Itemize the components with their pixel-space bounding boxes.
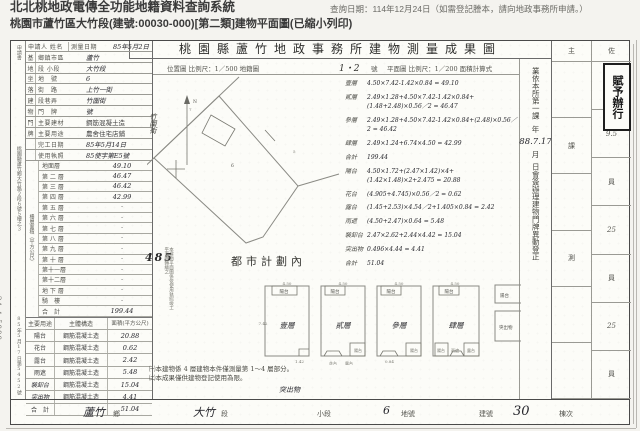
scanned-document: 桃園縣蘆竹地政事務所建物測量成果圖 位置圖 比例尺：1／500 地籍圖 1・2 … bbox=[10, 40, 630, 425]
sig-cell: 員 bbox=[592, 255, 631, 303]
row-value: 鋼筋混凝土造 bbox=[84, 117, 152, 127]
attach-area: 2.42 bbox=[108, 356, 152, 364]
area-calculation-block: 壹層4.50×7.42-1.42×0.84 = 49.10 貳層2.49×1.2… bbox=[345, 79, 519, 272]
location-map-scale: 位置圖 比例尺：1／500 地籍圖 bbox=[167, 63, 259, 73]
table-row: 陽台鋼筋混凝土造20.88 bbox=[26, 330, 152, 342]
row-label: 主要建材 bbox=[36, 118, 84, 127]
calc-line: 肆層2.49×1.24+6.74×4.50 = 42.99 bbox=[345, 139, 519, 148]
table-row: 門 主要建材 鋼筋混凝土造 bbox=[26, 117, 152, 128]
tracing-note: 本建物平面圖係依使用執照竣工平面圖轉繪之 bbox=[163, 247, 172, 311]
group-char: 門 bbox=[26, 117, 36, 127]
floor-area: · bbox=[92, 224, 152, 232]
header-structure: 主體構造 bbox=[54, 318, 108, 329]
township-label: 鄉 bbox=[113, 409, 120, 419]
table-row: 露台鋼筋混凝土造2.42 bbox=[26, 354, 152, 366]
table-row: 地 段 小段 大竹段 bbox=[26, 63, 152, 74]
table-row: 騎 樓· bbox=[39, 296, 152, 306]
header-use: 主要用途 bbox=[26, 319, 54, 328]
balcony-label: 陽台 bbox=[387, 288, 396, 295]
attach-structure: 鋼筋混凝土造 bbox=[54, 354, 108, 365]
floor-label: 第 二 層 bbox=[39, 172, 92, 181]
table-row: 使用執照 85使字第E5號 bbox=[26, 150, 152, 161]
attach-use: 雨遮 bbox=[26, 368, 54, 377]
canopy-label: 雨遮 bbox=[451, 347, 459, 353]
left-form-column: 申請書 桃園縣蘆竹鄉大竹路２段６號５樓之３ 85年5月17日第5452號 申請人… bbox=[11, 41, 153, 399]
floor-label: 地 下 層 bbox=[39, 286, 92, 295]
table-row: 第 八 層· bbox=[39, 234, 152, 244]
floor-label: 地面層 bbox=[39, 161, 92, 170]
floor-label: 第 四 層 bbox=[39, 192, 92, 201]
calc-expr: 2.47×2.62+2.44×4.42 = 15.04 bbox=[367, 231, 519, 240]
location-map: 竹圍街 N 7 5 6 bbox=[147, 73, 349, 279]
row-value: 6 bbox=[84, 75, 152, 83]
floor-area: · bbox=[92, 245, 152, 253]
balcony-label: 陽台 bbox=[445, 288, 454, 295]
row-value: 號 bbox=[84, 106, 152, 116]
floor-area: 46.42 bbox=[92, 182, 152, 190]
group-char: 牌 bbox=[26, 128, 36, 138]
attach-use: 花台 bbox=[26, 343, 54, 352]
dimension: 4.50 bbox=[339, 281, 348, 286]
calc-line: 壹層4.50×7.42-1.42×0.84 = 49.10 bbox=[345, 79, 519, 88]
calc-expr: 2.49×1.24+6.74×4.50 = 42.99 bbox=[367, 139, 519, 148]
floor-plan-3: 4.50 陽台 參層 陽台 0.84 bbox=[377, 281, 421, 364]
attach-structure: 鋼筋混凝土造 bbox=[54, 342, 108, 353]
page-edge-line bbox=[633, 44, 634, 424]
floor-name: 肆層 bbox=[449, 321, 465, 330]
floor-table-side-label: 樓層面積（平方公尺） bbox=[26, 161, 39, 317]
table-row: 第 六 層· bbox=[39, 213, 152, 223]
floor-plan-4: 4.50 陽台 肆層 陽台 露台 雨遮 bbox=[433, 281, 479, 356]
applicant-row: 申請人 姓名 測量日期 85年5月2日 bbox=[26, 41, 152, 52]
land-number-value: 6 bbox=[383, 404, 390, 417]
table-row: 坐 地 號 6 bbox=[26, 74, 152, 84]
document-title: 桃園縣蘆竹地政事務所建物測量成果圖 bbox=[129, 41, 551, 59]
group-char: 坐 bbox=[26, 74, 36, 83]
sig-cell: 25 bbox=[592, 206, 631, 254]
group-char bbox=[26, 139, 36, 149]
attach-use: 裝卸台 bbox=[26, 380, 54, 389]
row-value: 大竹段 bbox=[84, 63, 152, 73]
note-line: ㈠本建物係 4 層建物本件僅測量第 1～4 層部分。 bbox=[149, 365, 293, 374]
dimension: 0.84 bbox=[385, 359, 394, 364]
floor-label: 第 九 層 bbox=[39, 244, 92, 253]
parcel-number: 6 bbox=[231, 163, 234, 169]
calc-label: 露台 bbox=[345, 203, 367, 212]
query-date: 查詢日期：114年12月24日（如需登記謄本，請向地政事務所申請。） bbox=[330, 3, 588, 15]
urban-plan-label: 都市計劃內 bbox=[231, 253, 306, 269]
row-value: 竹圍街 bbox=[84, 95, 152, 105]
dimension: 1.42 bbox=[295, 359, 304, 364]
township-value: 蘆竹 bbox=[83, 404, 105, 420]
building-number-value: 30 bbox=[513, 404, 530, 419]
sig-header: 主 bbox=[552, 41, 591, 62]
table-row: 第 三 層46.42 bbox=[39, 182, 152, 192]
applicant-address: 桃園縣蘆竹鄉大竹路２段６號５樓之３ bbox=[15, 146, 21, 231]
sig-cell bbox=[552, 343, 591, 399]
attach-use: 陽台 bbox=[26, 331, 54, 340]
row-label: 段巷弄 bbox=[36, 96, 84, 105]
attach-structure: 鋼筋混凝土造 bbox=[54, 379, 108, 390]
calc-label: 花台 bbox=[345, 190, 367, 199]
dimension: 4.50 bbox=[283, 281, 292, 286]
sig-cell: 25 bbox=[592, 303, 631, 351]
group-char: 物 bbox=[26, 106, 36, 116]
calc-expr: 0.496×4.44 = 4.41 bbox=[367, 245, 519, 254]
table-row: 花台鋼筋混凝土造0.62 bbox=[26, 342, 152, 354]
floor-label: 第十一層 bbox=[39, 265, 92, 274]
balcony-label: 陽台 bbox=[280, 288, 289, 295]
attach-use: 露台 bbox=[26, 356, 54, 365]
boundary-spur bbox=[298, 174, 339, 186]
dimension: 4.50 bbox=[395, 281, 404, 286]
balcony-label: 陽台 bbox=[354, 347, 362, 353]
header-area: 面積(平方公尺) bbox=[108, 319, 152, 327]
balcony-label: 陽台 bbox=[437, 347, 445, 353]
attach-area: 5.48 bbox=[108, 368, 152, 376]
table-row: 第 四 層42.99 bbox=[39, 192, 152, 202]
calc-line: 花台(4.905+4.745)×0.56／2 = 0.62 bbox=[345, 190, 519, 199]
attach-area: 20.88 bbox=[108, 332, 152, 340]
floor-label: 第十二層 bbox=[39, 275, 92, 284]
calc-expr: (1.45+2.53)×4.54／2+1.405×0.84 = 2.42 bbox=[367, 203, 519, 212]
floor-name: 參層 bbox=[392, 321, 408, 330]
table-row: 合 計199.44 bbox=[39, 306, 152, 316]
neighbor-parcel-number: 7 bbox=[189, 107, 192, 112]
signature-strip: 主 課 測 佐 長 9.5 員 25 員 25 員 賦予辦行 bbox=[551, 41, 631, 399]
side-label-text: 樓層面積（平方公尺） bbox=[29, 214, 36, 264]
table-row: 基 鄉鎮市區 蘆竹 bbox=[26, 52, 152, 63]
floor-label: 第 八 層 bbox=[39, 234, 92, 243]
memo-month-label: 月 bbox=[532, 150, 540, 159]
north-label: N bbox=[193, 99, 197, 105]
attach-area: 15.04 bbox=[108, 381, 152, 389]
sig-cell bbox=[552, 174, 591, 230]
left-margin-strip: 申請書 桃園縣蘆竹鄉大竹路２段６號５樓之３ 85年5月17日第5452號 bbox=[11, 41, 26, 399]
calc-expr: 4.50×1.72+(2.47×1.42)×4+(1.42×1.48)×2+2.… bbox=[367, 167, 519, 186]
table-row: 雨遮鋼筋混凝土造5.48 bbox=[26, 367, 152, 379]
floor-label: 第 五 層 bbox=[39, 203, 92, 212]
row-value: 蘆竹 bbox=[84, 52, 152, 62]
calc-label: 參層 bbox=[345, 116, 367, 135]
floor-area: · bbox=[92, 266, 152, 274]
floor-total: 199.44 bbox=[92, 307, 152, 315]
sig-header: 佐 bbox=[592, 41, 631, 62]
table-row: 第 五 層· bbox=[39, 203, 152, 213]
row-value: 85使字第E5號 bbox=[84, 150, 152, 160]
row-value: 農舍住宅店鋪 bbox=[84, 128, 152, 138]
left-form-main: 申請人 姓名 測量日期 85年5月2日 基 鄉鎮市區 蘆竹 地 段 小段 大竹段… bbox=[26, 41, 152, 399]
floor-area: · bbox=[92, 286, 152, 294]
section-value: 大竹 bbox=[193, 404, 215, 420]
calc-line: 合計51.04 bbox=[345, 259, 519, 268]
table-row: 落 街 路 上竹一街 bbox=[26, 84, 152, 95]
bottom-location-bar: 蘆竹 鄉 大竹 段 小段 6 地號 建號 30 棟次 bbox=[11, 399, 629, 425]
dimension: 4.50 bbox=[451, 281, 460, 286]
table-row: 建 段巷弄 竹圍街 bbox=[26, 95, 152, 106]
system-title: 北北桃地政電傳全功能地籍資料查詢系統 bbox=[10, 0, 235, 15]
land-number-label: 地號 bbox=[401, 409, 415, 419]
north-arrow-icon bbox=[184, 95, 190, 104]
floor-area: · bbox=[92, 255, 152, 263]
calc-line: 露台(1.45+2.53)×4.54／2+1.405×0.84 = 2.42 bbox=[345, 203, 519, 212]
form-print-number: 24-4-5000 bbox=[0, 296, 2, 341]
building-footprint bbox=[202, 115, 235, 146]
note-line: ㈡本成果僅供建物登記使用為限。 bbox=[149, 374, 293, 383]
boundary-tick bbox=[265, 130, 275, 141]
floor-area-table: 樓層面積（平方公尺） 地面層49.10 第 二 層46.47 第 三 層46.4… bbox=[26, 161, 152, 318]
memo-text: 日會簽辦理建物門牌異動登正 bbox=[531, 163, 540, 261]
balcony-label: 陽台 bbox=[410, 347, 418, 353]
floor-plan-1: 4.50 陽台 7.42 壹層 1.42 bbox=[259, 281, 309, 364]
sig-cell: 課 bbox=[552, 118, 591, 174]
survey-date-label: 測量日期 bbox=[68, 42, 111, 51]
group-char: 落 bbox=[26, 84, 36, 94]
calc-expr: (4.50+2.47)×0.64 = 5.48 bbox=[367, 217, 519, 226]
table-row: 完工日期 85年5月14日 bbox=[26, 139, 152, 150]
calc-line: 雨遮(4.50+2.47)×0.64 = 5.48 bbox=[345, 217, 519, 226]
group-char: 建 bbox=[26, 95, 36, 105]
road-line bbox=[147, 77, 239, 176]
floor-label: 合 計 bbox=[39, 307, 92, 316]
number-assignment-stamp: 賦予辦行 bbox=[603, 63, 631, 131]
floor-area: 49.10 bbox=[92, 162, 152, 170]
block-label: 棟次 bbox=[559, 409, 573, 419]
table-row: 第 七 層· bbox=[39, 223, 152, 233]
projection-label: 突出物 bbox=[499, 324, 513, 331]
table-row: 第 二 層46.47 bbox=[39, 171, 152, 181]
table-row: 牌 主要用途 農舍住宅店鋪 bbox=[26, 128, 152, 139]
group-char: 基 bbox=[26, 52, 36, 62]
calc-line: 貳層2.49×1.28+4.50×7.42-1.42×0.84+(1.48+2.… bbox=[345, 93, 519, 112]
section-label: 段 bbox=[221, 409, 228, 419]
survey-notes: ㈠本建物係 4 層建物本件僅測量第 1～4 層部分。 ㈡本成果僅供建物登記使用為… bbox=[149, 365, 293, 384]
group-char bbox=[26, 150, 36, 160]
floor-area: 42.99 bbox=[92, 193, 152, 201]
table-row: 地面層49.10 bbox=[39, 161, 152, 171]
sig-cell: 測 bbox=[552, 231, 591, 287]
memo-year-label: 年 bbox=[532, 125, 540, 134]
signature-column-left: 主 課 測 bbox=[552, 41, 592, 399]
terrace-label: 露台 bbox=[467, 347, 475, 353]
floor-plan-2: 4.50 陽台 貳層 陽台 花台 露台 bbox=[321, 281, 365, 365]
row-value: 上竹一街 bbox=[84, 84, 152, 94]
street-name-label: 竹圍街 bbox=[149, 113, 158, 134]
floor-label: 第 六 層 bbox=[39, 213, 92, 222]
calc-label: 陽台 bbox=[345, 167, 367, 186]
calc-expr: 51.04 bbox=[367, 259, 519, 268]
floor-plans: 4.50 陽台 7.42 壹層 1.42 4.50 陽台 貳層 陽台 花台 bbox=[237, 277, 521, 365]
sig-cell: 員 bbox=[592, 351, 631, 399]
scan-edge-line bbox=[6, 428, 636, 429]
row-label: 門 牌 bbox=[36, 107, 84, 116]
floor-area: · bbox=[92, 276, 152, 284]
row-label: 鄉鎮市區 bbox=[36, 53, 84, 62]
row-label: 主要用途 bbox=[36, 129, 84, 138]
calc-label: 肆層 bbox=[345, 139, 367, 148]
table-row: 地 下 層· bbox=[39, 286, 152, 296]
calc-label: 貳層 bbox=[345, 93, 367, 112]
calc-label: 突出物 bbox=[345, 245, 367, 254]
floor-name: 貳層 bbox=[336, 321, 352, 330]
memo-dept: 業依本所第一課 bbox=[531, 67, 540, 120]
sheet-number-unit: 號 bbox=[371, 63, 378, 73]
table-row: 第十二層· bbox=[39, 275, 152, 285]
table-row: 物 門 牌 號 bbox=[26, 106, 152, 117]
floor-label: 第 十 層 bbox=[39, 255, 92, 264]
memo-date: 88.7.17 bbox=[519, 137, 551, 147]
calc-line: 合計199.44 bbox=[345, 153, 519, 162]
survey-date-value: 85年5月2日 bbox=[111, 41, 152, 51]
page-edge-line bbox=[636, 40, 637, 428]
balcony-label: 陽台 bbox=[500, 292, 509, 299]
floor-label: 第 三 層 bbox=[39, 182, 92, 191]
floor-area: · bbox=[92, 234, 152, 242]
calc-expr: 2.49×1.28+4.50×7.42-1.42×0.84+(2.48)×0.5… bbox=[367, 116, 519, 135]
floor-plan-partial: 陽台 突出物 bbox=[495, 285, 521, 341]
stamp-text: 賦予辦行 bbox=[609, 75, 625, 119]
row-label: 段 小段 bbox=[36, 64, 84, 73]
calc-line: 裝卸台2.47×2.62+2.44×4.42 = 15.04 bbox=[345, 231, 519, 240]
balcony-label: 陽台 bbox=[331, 288, 340, 295]
floor-name: 壹層 bbox=[280, 321, 296, 330]
terrace-label: 露台 bbox=[345, 360, 353, 365]
attach-structure: 鋼筋混凝土造 bbox=[54, 330, 108, 341]
row-label: 使用執照 bbox=[36, 151, 84, 160]
calc-line: 突出物0.496×4.44 = 4.41 bbox=[345, 245, 519, 254]
calc-line: 參層2.49×1.28+4.50×7.42-1.42×0.84+(2.48)×0… bbox=[345, 116, 519, 135]
application-doc-label: 申請書 bbox=[15, 45, 21, 60]
row-label: 完工日期 bbox=[36, 140, 84, 149]
attach-structure: 鋼筋混凝土造 bbox=[54, 367, 108, 378]
memo-column: 業依本所第一課 年 88.7.17 月 日會簽辦理建物門牌異動登正 bbox=[519, 59, 551, 399]
screenshot-stage: 北北桃地政電傳全功能地籍資料查詢系統 查詢日期：114年12月24日（如需登記謄… bbox=[0, 0, 640, 431]
calc-label: 裝卸台 bbox=[345, 231, 367, 240]
table-row: 第 十 層· bbox=[39, 255, 152, 265]
calc-label: 合計 bbox=[345, 259, 367, 268]
row-label: 街 路 bbox=[36, 85, 84, 94]
dimension: 7.42 bbox=[259, 321, 268, 326]
sig-cell bbox=[552, 62, 591, 118]
calc-expr: 4.50×7.42-1.42×0.84 = 49.10 bbox=[367, 79, 519, 88]
calc-label: 壹層 bbox=[345, 79, 367, 88]
floor-area: · bbox=[92, 203, 152, 211]
calc-line: 陽台4.50×1.72+(2.47×1.42)×4+(1.42×1.48)×2+… bbox=[345, 167, 519, 186]
floor-area: · bbox=[92, 297, 152, 305]
floor-label: 騎 樓 bbox=[39, 296, 92, 305]
group-char: 地 bbox=[26, 63, 36, 73]
sig-cell bbox=[552, 287, 591, 343]
subsection-label: 小段 bbox=[317, 409, 331, 419]
floor-area: 46.47 bbox=[92, 172, 152, 180]
document-subtitle: 桃園市蘆竹區大竹段(建號:00030-000)[第二類]建物平面圖(已縮小列印) bbox=[10, 15, 352, 31]
building-number-label: 建號 bbox=[479, 409, 493, 419]
calc-label: 雨遮 bbox=[345, 217, 367, 226]
floor-table-rows: 地面層49.10 第 二 層46.47 第 三 層46.42 第 四 層42.9… bbox=[39, 161, 152, 317]
table-row: 裝卸台鋼筋混凝土造15.04 bbox=[26, 379, 152, 391]
receipt-number: 85年5月17日第5452號 bbox=[15, 316, 21, 395]
floor-plan-scale: 平面圖 比例尺：1／200 面積計算式 bbox=[387, 63, 492, 73]
attachment-table-header: 主要用途 主體構造 面積(平方公尺) bbox=[26, 318, 152, 330]
applicant-label: 申請人 姓名 bbox=[26, 42, 68, 51]
calc-label: 合計 bbox=[345, 153, 367, 162]
table-row: 第十一層· bbox=[39, 265, 152, 275]
calc-expr: 2.49×1.28+4.50×7.42-1.42×0.84+(1.48+2.48… bbox=[367, 93, 519, 112]
row-value: 85年5月14日 bbox=[84, 139, 152, 149]
calc-expr: 199.44 bbox=[367, 153, 519, 162]
attach-area: 0.62 bbox=[108, 344, 152, 352]
row-label: 地 號 bbox=[36, 74, 84, 83]
neighbor-parcel-number: 5 bbox=[293, 149, 296, 154]
floor-label: 第 七 層 bbox=[39, 224, 92, 233]
sig-cell: 員 bbox=[592, 158, 631, 206]
calc-expr: (4.905+4.745)×0.56／2 = 0.62 bbox=[367, 190, 519, 199]
table-row: 第 九 層· bbox=[39, 244, 152, 254]
projection-annotation: 突出物 bbox=[279, 385, 300, 395]
flower-bed-label: 花台 bbox=[329, 360, 337, 365]
floor-area: · bbox=[92, 214, 152, 222]
